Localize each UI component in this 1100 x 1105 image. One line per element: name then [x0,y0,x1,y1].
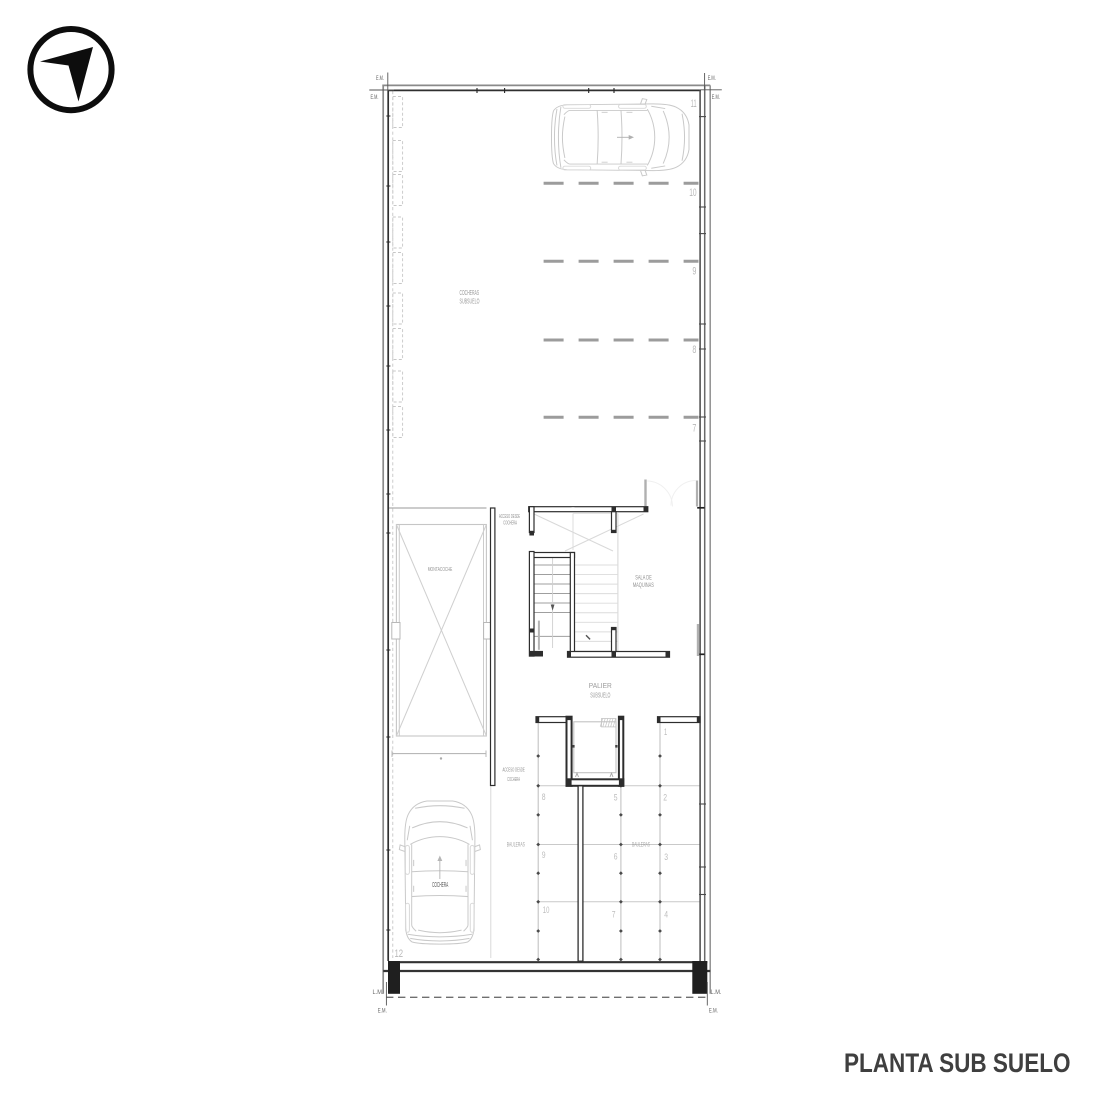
svg-text:COCHERA: COCHERA [503,521,517,527]
svg-text:E.M.: E.M. [371,94,379,101]
svg-text:E.M.: E.M. [376,75,384,82]
svg-text:PALIER: PALIER [589,681,613,690]
svg-text:L.M.: L.M. [373,989,384,996]
svg-text:MONTACOCHE: MONTACOCHE [428,567,453,573]
svg-text:8: 8 [542,792,546,802]
svg-text:E.M.: E.M. [378,1008,387,1015]
svg-text:E.M.: E.M. [712,94,720,101]
svg-text:ACCESO DESDE: ACCESO DESDE [499,514,520,520]
svg-text:PLANTA SUB SUELO: PLANTA SUB SUELO [844,1048,1071,1078]
svg-text:10: 10 [689,187,696,199]
svg-text:L.M.: L.M. [711,989,722,996]
svg-text:1: 1 [664,727,667,737]
svg-text:5: 5 [614,792,618,802]
svg-text:MAQUINAS: MAQUINAS [633,582,654,589]
svg-text:11: 11 [691,98,697,110]
svg-text:SUBSUELO: SUBSUELO [460,298,480,305]
svg-text:9: 9 [542,850,546,860]
svg-text:10: 10 [543,905,550,915]
svg-text:4: 4 [664,909,668,919]
svg-text:6: 6 [614,851,618,861]
svg-text:9: 9 [692,266,696,278]
svg-text:8: 8 [692,344,696,356]
svg-text:E.M.: E.M. [709,1008,718,1015]
svg-text:SUBSUELO: SUBSUELO [590,691,610,700]
svg-text:SALA DE: SALA DE [635,575,652,582]
svg-text:COCHERA: COCHERA [432,882,448,889]
svg-text:12: 12 [395,948,404,960]
svg-text:COCHERA: COCHERA [507,777,520,783]
svg-text:BAULERAS: BAULERAS [632,842,650,848]
svg-text:COCHERAS: COCHERAS [460,290,480,297]
svg-text:3: 3 [664,852,668,862]
svg-text:ACCESO DESDE: ACCESO DESDE [502,768,525,774]
svg-text:7: 7 [612,909,616,919]
svg-text:7: 7 [692,422,696,434]
svg-text:BAULERAS: BAULERAS [507,842,525,848]
svg-text:E.M.: E.M. [708,75,716,82]
svg-text:2: 2 [663,792,667,802]
